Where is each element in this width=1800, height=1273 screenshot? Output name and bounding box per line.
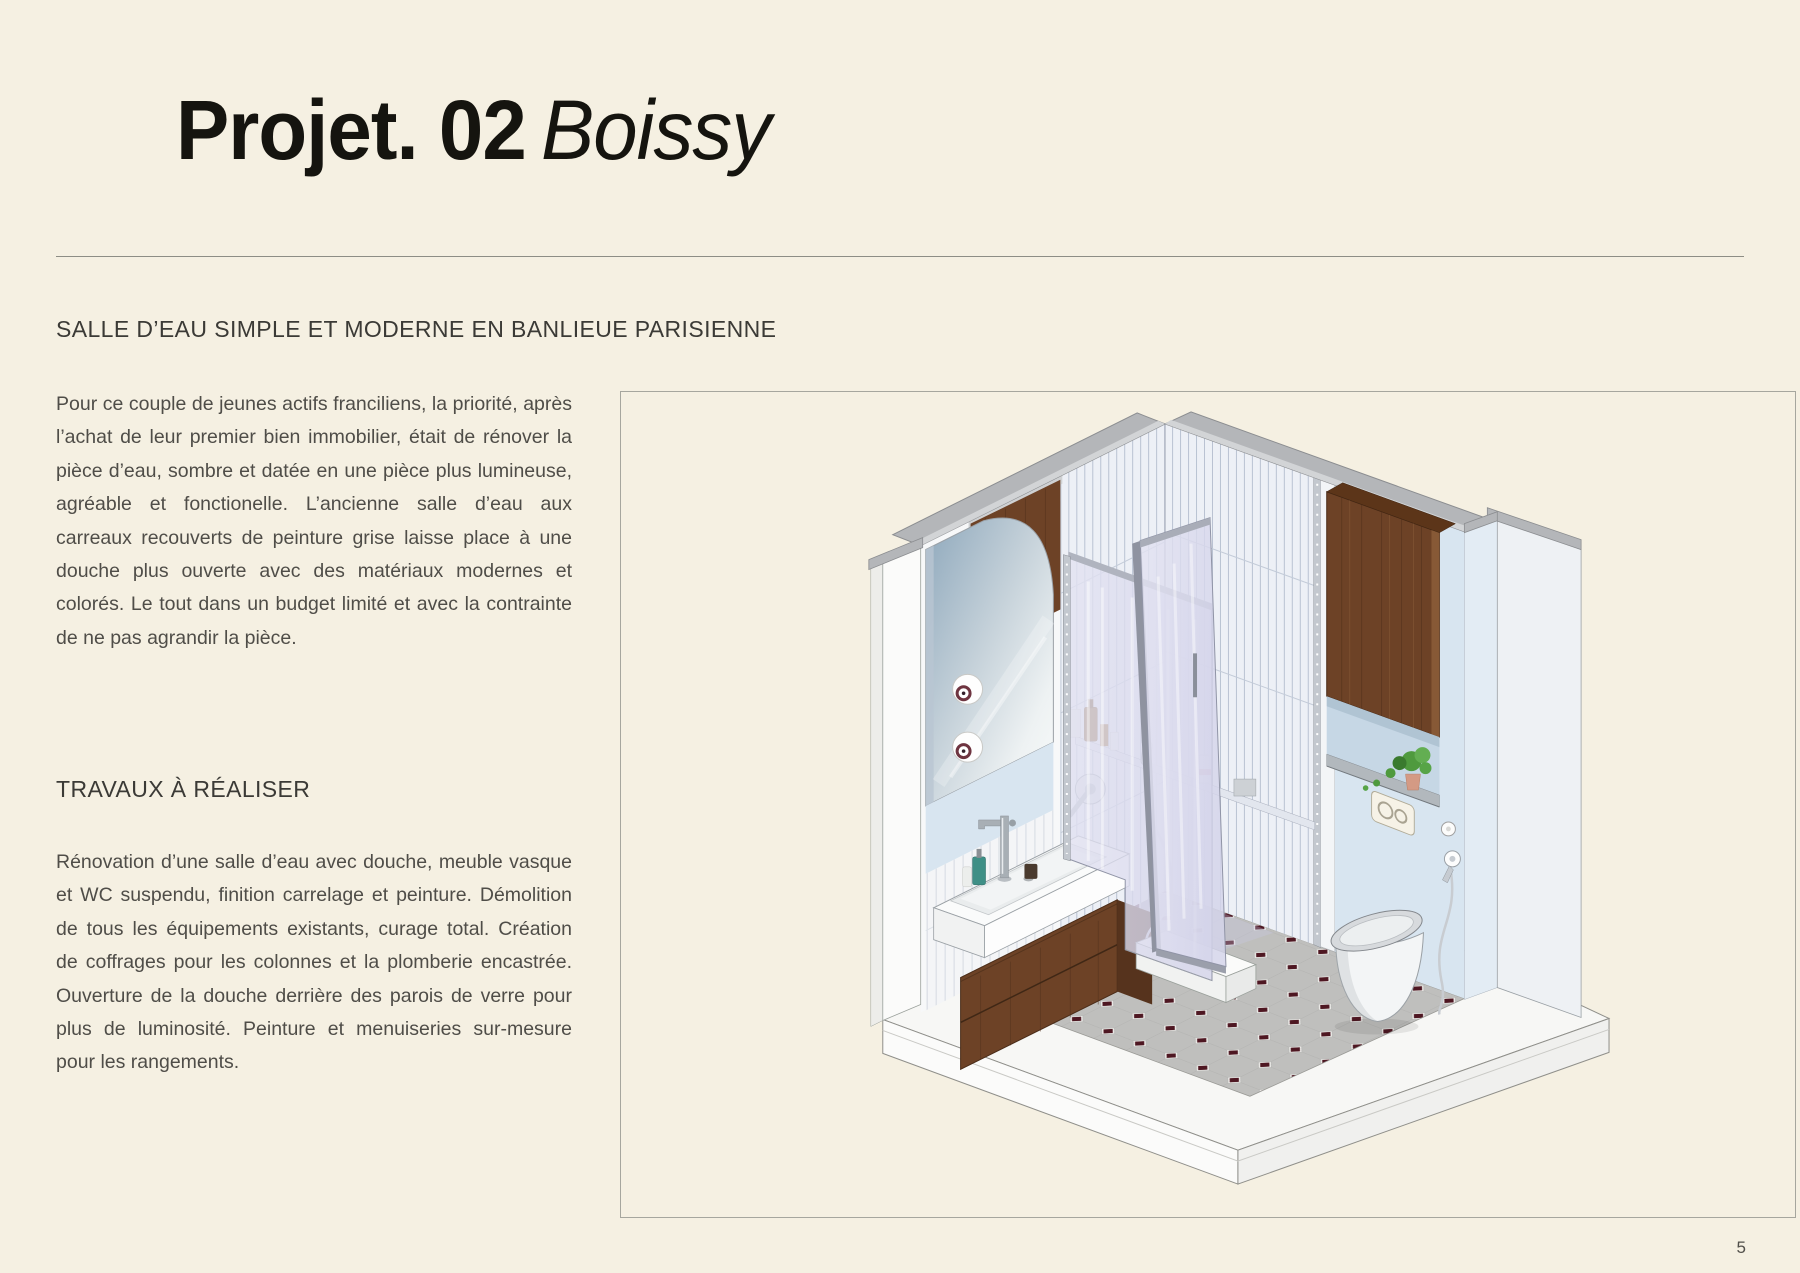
intro-paragraph: Pour ce couple de jeunes actifs francili… (56, 388, 572, 655)
title-divider (56, 256, 1744, 257)
page-title-main: Projet. 02 (176, 83, 526, 177)
intro-heading: SALLE D’EAU SIMPLE ET MODERNE EN BANLIEU… (56, 316, 776, 343)
page-title-accent: Boissy (541, 83, 770, 177)
wood-cabinet (1327, 492, 1440, 737)
right-pillar (1464, 508, 1581, 1018)
left-pillar (869, 538, 923, 1027)
toilet-roll-holder (1441, 822, 1455, 836)
portfolio-page: { "document": { "background": "#f5f0e2",… (0, 0, 1800, 1273)
bathroom-3d-cutaway (621, 392, 1795, 1217)
wall-light-sconce (953, 732, 983, 762)
bathroom-axonometric-figure (620, 391, 1796, 1218)
page-title: Projet. 02Boissy (176, 84, 770, 176)
works-paragraph: Rénovation d’une salle d’eau avec douche… (56, 846, 572, 1080)
page-number: 5 (1737, 1238, 1746, 1258)
works-heading: TRAVAUX À RÉALISER (56, 776, 310, 803)
door-handle (1193, 653, 1197, 697)
wall-light-sconce (953, 674, 983, 704)
